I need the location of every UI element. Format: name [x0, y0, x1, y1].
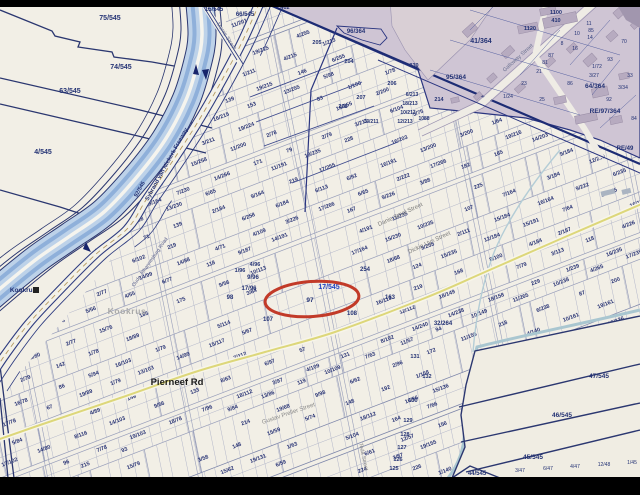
svg-text:3/47: 3/47 [515, 468, 525, 474]
svg-text:47/545: 47/545 [589, 373, 609, 380]
svg-text:44/545: 44/545 [468, 471, 487, 477]
svg-text:23: 23 [521, 81, 527, 87]
svg-text:32/264: 32/264 [434, 321, 453, 327]
svg-text:204: 204 [344, 59, 354, 65]
svg-text:25: 25 [539, 97, 545, 103]
svg-text:9/96: 9/96 [247, 275, 259, 281]
svg-text:208: 208 [338, 104, 347, 110]
svg-text:132: 132 [422, 374, 431, 380]
svg-text:16: 16 [572, 46, 578, 52]
svg-text:1088: 1088 [418, 116, 429, 122]
svg-text:254: 254 [360, 267, 371, 273]
svg-text:4/545: 4/545 [34, 149, 52, 156]
svg-text:45/545: 45/545 [523, 454, 543, 461]
svg-text:46/545: 46/545 [552, 412, 572, 419]
svg-text:4/96: 4/96 [250, 262, 261, 268]
svg-text:130: 130 [408, 398, 417, 404]
svg-text:163: 163 [385, 295, 396, 301]
svg-text:131: 131 [410, 354, 419, 360]
svg-text:81: 81 [542, 60, 548, 66]
svg-text:12/213: 12/213 [397, 119, 413, 125]
svg-text:87: 87 [548, 53, 554, 59]
svg-text:Kookrus: Kookrus [108, 306, 147, 316]
svg-text:95/364: 95/364 [446, 74, 466, 81]
svg-text:17/545: 17/545 [318, 284, 340, 291]
svg-text:1/45: 1/45 [627, 460, 637, 466]
svg-text:Kookrus: Kookrus [10, 287, 37, 294]
svg-text:1/96: 1/96 [235, 268, 246, 274]
svg-text:214: 214 [434, 97, 444, 103]
svg-text:33: 33 [627, 73, 633, 79]
svg-text:RE/49: RE/49 [617, 146, 634, 152]
svg-text:127: 127 [397, 445, 406, 451]
svg-text:206: 206 [387, 81, 396, 87]
svg-text:64/364: 64/364 [585, 83, 605, 90]
svg-text:70: 70 [621, 39, 627, 45]
svg-text:96/364: 96/364 [347, 29, 366, 35]
svg-text:21: 21 [536, 69, 542, 75]
svg-text:84: 84 [631, 116, 637, 122]
svg-text:207: 207 [356, 95, 365, 101]
svg-text:6/47: 6/47 [543, 466, 553, 472]
svg-text:10/213: 10/213 [400, 110, 416, 116]
svg-text:15/545: 15/545 [205, 7, 224, 13]
svg-text:11: 11 [586, 21, 591, 27]
svg-text:1/24: 1/24 [503, 94, 513, 100]
svg-text:1100: 1100 [550, 10, 562, 16]
svg-text:18/213: 18/213 [402, 101, 418, 107]
svg-text:Pierneef Rd: Pierneef Rd [151, 377, 204, 388]
svg-text:410: 410 [551, 18, 560, 24]
svg-text:1120: 1120 [524, 26, 536, 32]
svg-text:RE/97/364: RE/97/364 [590, 108, 621, 115]
svg-text:14: 14 [587, 35, 593, 41]
svg-text:85: 85 [588, 28, 594, 34]
svg-text:1/72: 1/72 [592, 64, 602, 70]
svg-text:93: 93 [607, 57, 613, 63]
svg-text:17/96: 17/96 [241, 286, 257, 292]
svg-text:3/27: 3/27 [589, 73, 599, 79]
svg-text:12/48: 12/48 [598, 462, 611, 468]
svg-text:125: 125 [389, 466, 398, 472]
svg-text:92: 92 [606, 97, 612, 103]
svg-text:13/211: 13/211 [363, 119, 378, 125]
svg-text:41/364: 41/364 [470, 38, 492, 45]
svg-text:3/34: 3/34 [618, 85, 628, 91]
svg-text:10: 10 [574, 31, 580, 37]
svg-text:66/545: 66/545 [236, 12, 255, 18]
svg-text:8: 8 [561, 41, 564, 47]
svg-text:74/545: 74/545 [110, 64, 132, 71]
svg-text:108: 108 [347, 311, 358, 317]
svg-text:830: 830 [409, 63, 418, 69]
svg-text:126: 126 [393, 457, 402, 463]
svg-text:97: 97 [306, 297, 314, 304]
svg-text:128: 128 [400, 432, 409, 438]
svg-text:205: 205 [312, 40, 321, 46]
svg-text:107: 107 [263, 317, 274, 323]
svg-text:4/47: 4/47 [570, 464, 580, 470]
svg-text:63/545: 63/545 [59, 88, 81, 95]
svg-text:6/213: 6/213 [406, 92, 419, 98]
svg-text:75/545: 75/545 [99, 15, 121, 22]
svg-text:98: 98 [227, 295, 234, 301]
svg-text:129: 129 [403, 418, 412, 424]
svg-text:86: 86 [567, 81, 573, 87]
